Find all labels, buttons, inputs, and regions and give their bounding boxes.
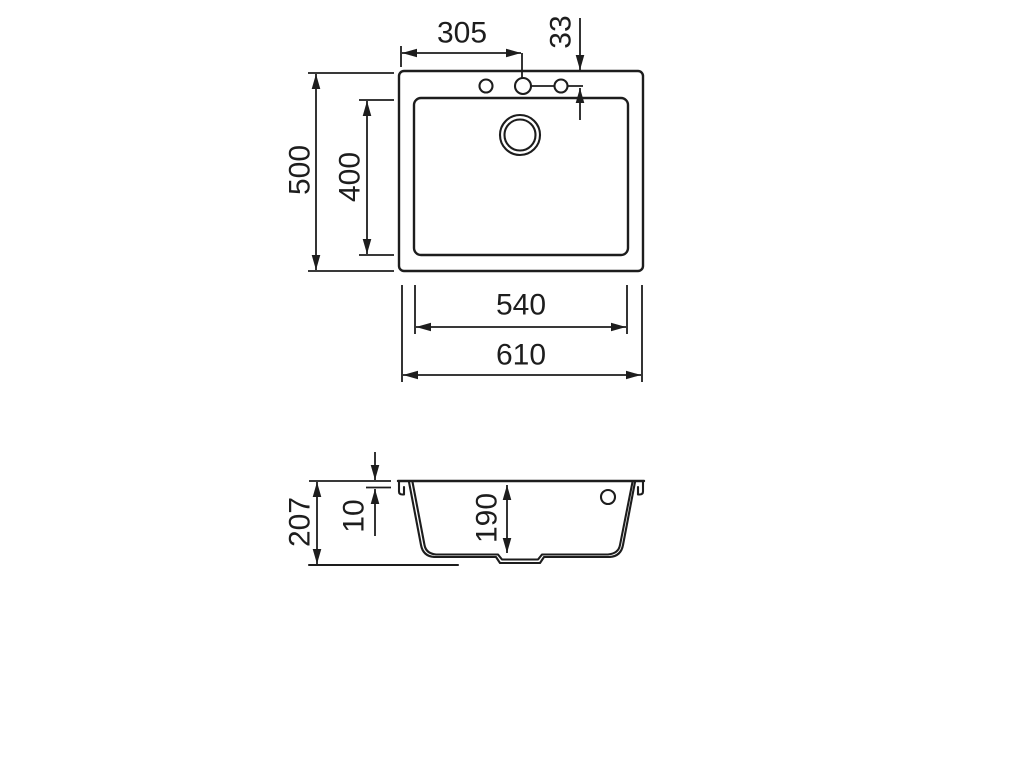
dim-207-label: 207 (284, 497, 317, 547)
dim-305-label: 305 (437, 17, 487, 50)
section-right-lip (638, 482, 643, 495)
tap-hole-left (480, 80, 493, 93)
dim-540: 540 (415, 285, 627, 334)
dim-33-label: 33 (545, 15, 578, 48)
dim-33: 33 (545, 15, 581, 120)
dim-400: 400 (334, 100, 395, 255)
dim-540-label: 540 (496, 289, 546, 322)
dim-190: 190 (471, 485, 508, 553)
section-bowl-inner-contour (413, 482, 633, 560)
drawing-canvas: 305 33 500 400 540 (0, 0, 1024, 768)
sink-dimension-drawing: 305 33 500 400 540 (0, 0, 1024, 768)
section-left-lip (399, 482, 404, 495)
bowl-outline (414, 98, 628, 255)
drain-outer-ring (500, 115, 540, 155)
drain-inner-ring (505, 120, 536, 151)
dim-400-label: 400 (334, 152, 367, 202)
dim-10: 10 (338, 452, 392, 536)
dim-10-label: 10 (338, 499, 371, 532)
dim-190-label: 190 (471, 493, 504, 543)
dim-610-label: 610 (496, 339, 546, 372)
section-view: 207 10 190 (284, 452, 645, 565)
dim-305: 305 (401, 17, 521, 68)
tap-hole-right (555, 80, 568, 93)
sink-outer-outline (399, 71, 643, 271)
drain-hole (500, 115, 540, 155)
top-view: 305 33 500 400 540 (284, 15, 644, 382)
dim-500-label: 500 (284, 145, 317, 195)
tap-hole-center (515, 78, 531, 94)
overflow-hole (601, 490, 615, 504)
